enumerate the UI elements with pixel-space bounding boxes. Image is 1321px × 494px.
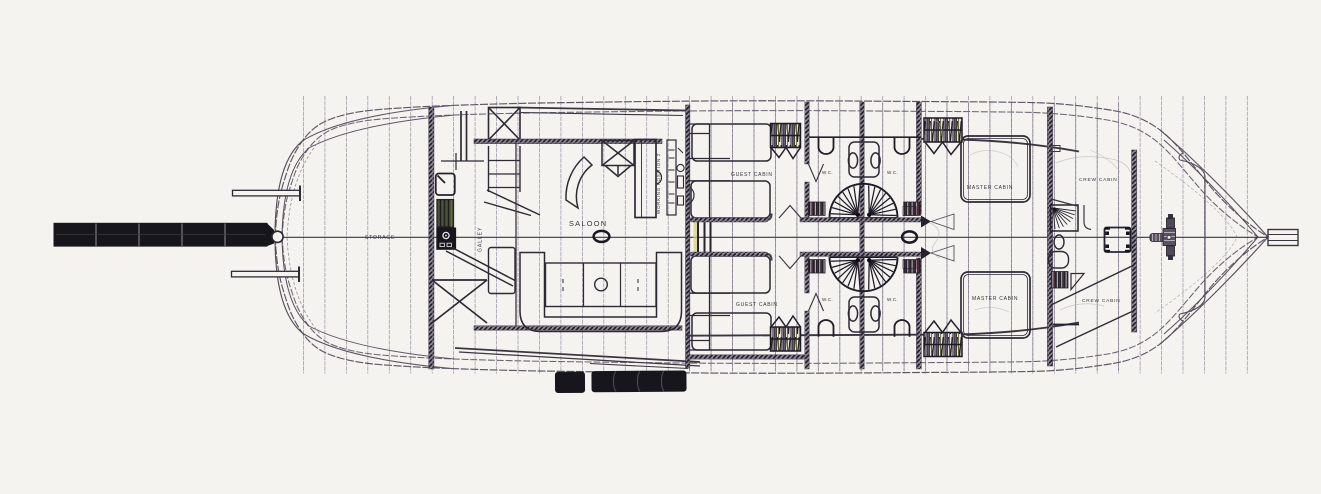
svg-text:WORKING POSITION 2: WORKING POSITION 2 [656,153,661,214]
svg-text:CREW CABIN: CREW CABIN [1079,177,1117,183]
svg-text:W.C.: W.C. [887,170,898,175]
svg-text:GUEST CABIN: GUEST CABIN [736,302,778,308]
svg-text:SALOON: SALOON [569,219,607,228]
svg-text:GUEST CABIN: GUEST CABIN [731,172,773,178]
svg-text:MASTER CABIN: MASTER CABIN [972,296,1018,302]
svg-text:W.C.: W.C. [822,170,833,175]
svg-text:STORAGE: STORAGE [365,235,395,241]
svg-text:GALLEY: GALLEY [478,227,484,252]
svg-text:W.C.: W.C. [822,297,833,302]
svg-text:W.C.: W.C. [887,297,898,302]
svg-text:MASTER CABIN: MASTER CABIN [967,185,1013,191]
svg-text:CREW CABIN: CREW CABIN [1082,298,1120,304]
